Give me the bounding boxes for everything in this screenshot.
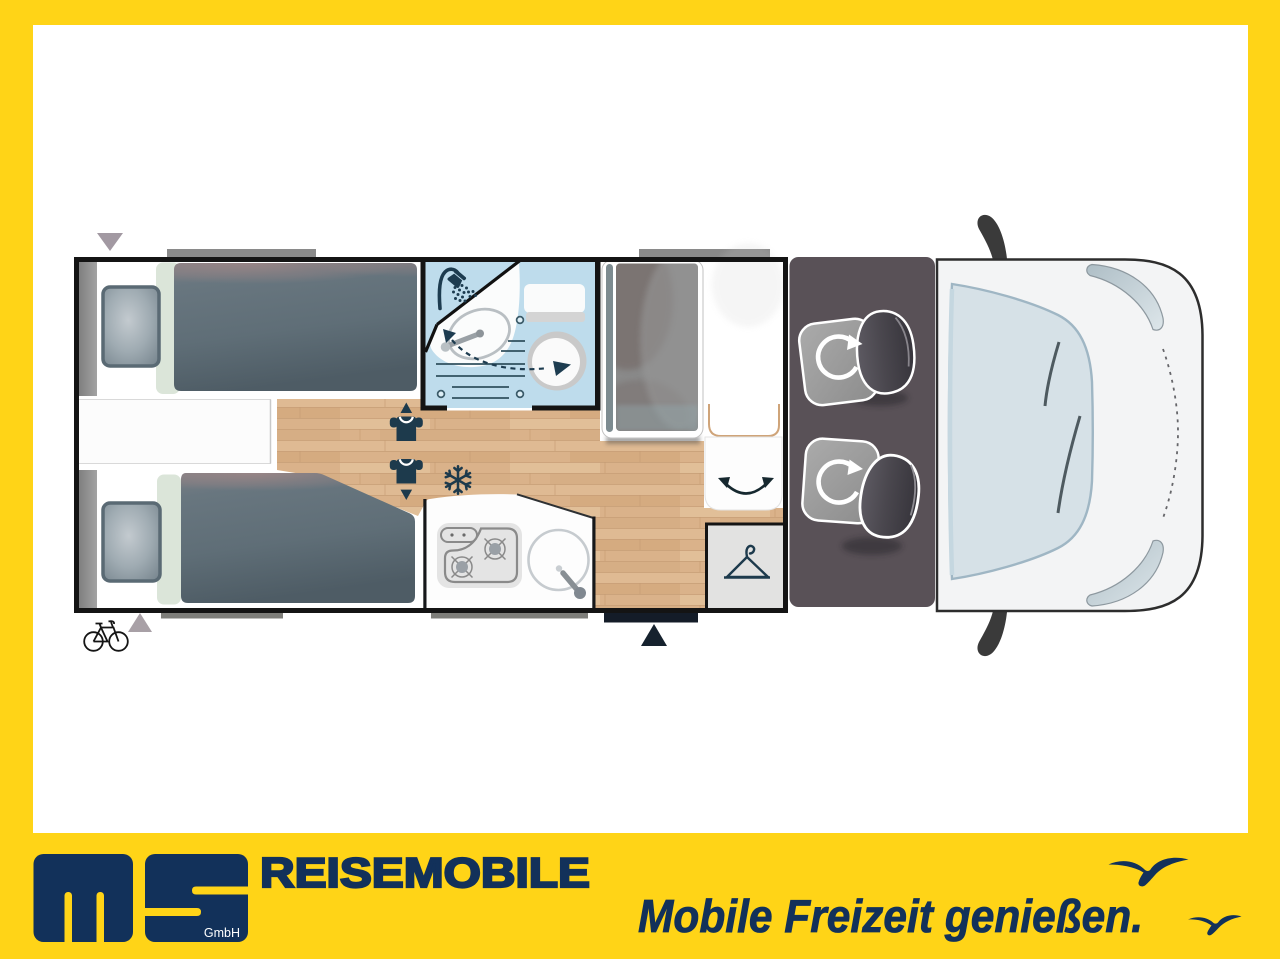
svg-text:Mobile Freizeit genießen.: Mobile Freizeit genießen.	[638, 890, 1143, 942]
svg-text:GmbH: GmbH	[204, 926, 240, 940]
svg-text:REISEMOBILE: REISEMOBILE	[260, 849, 590, 896]
